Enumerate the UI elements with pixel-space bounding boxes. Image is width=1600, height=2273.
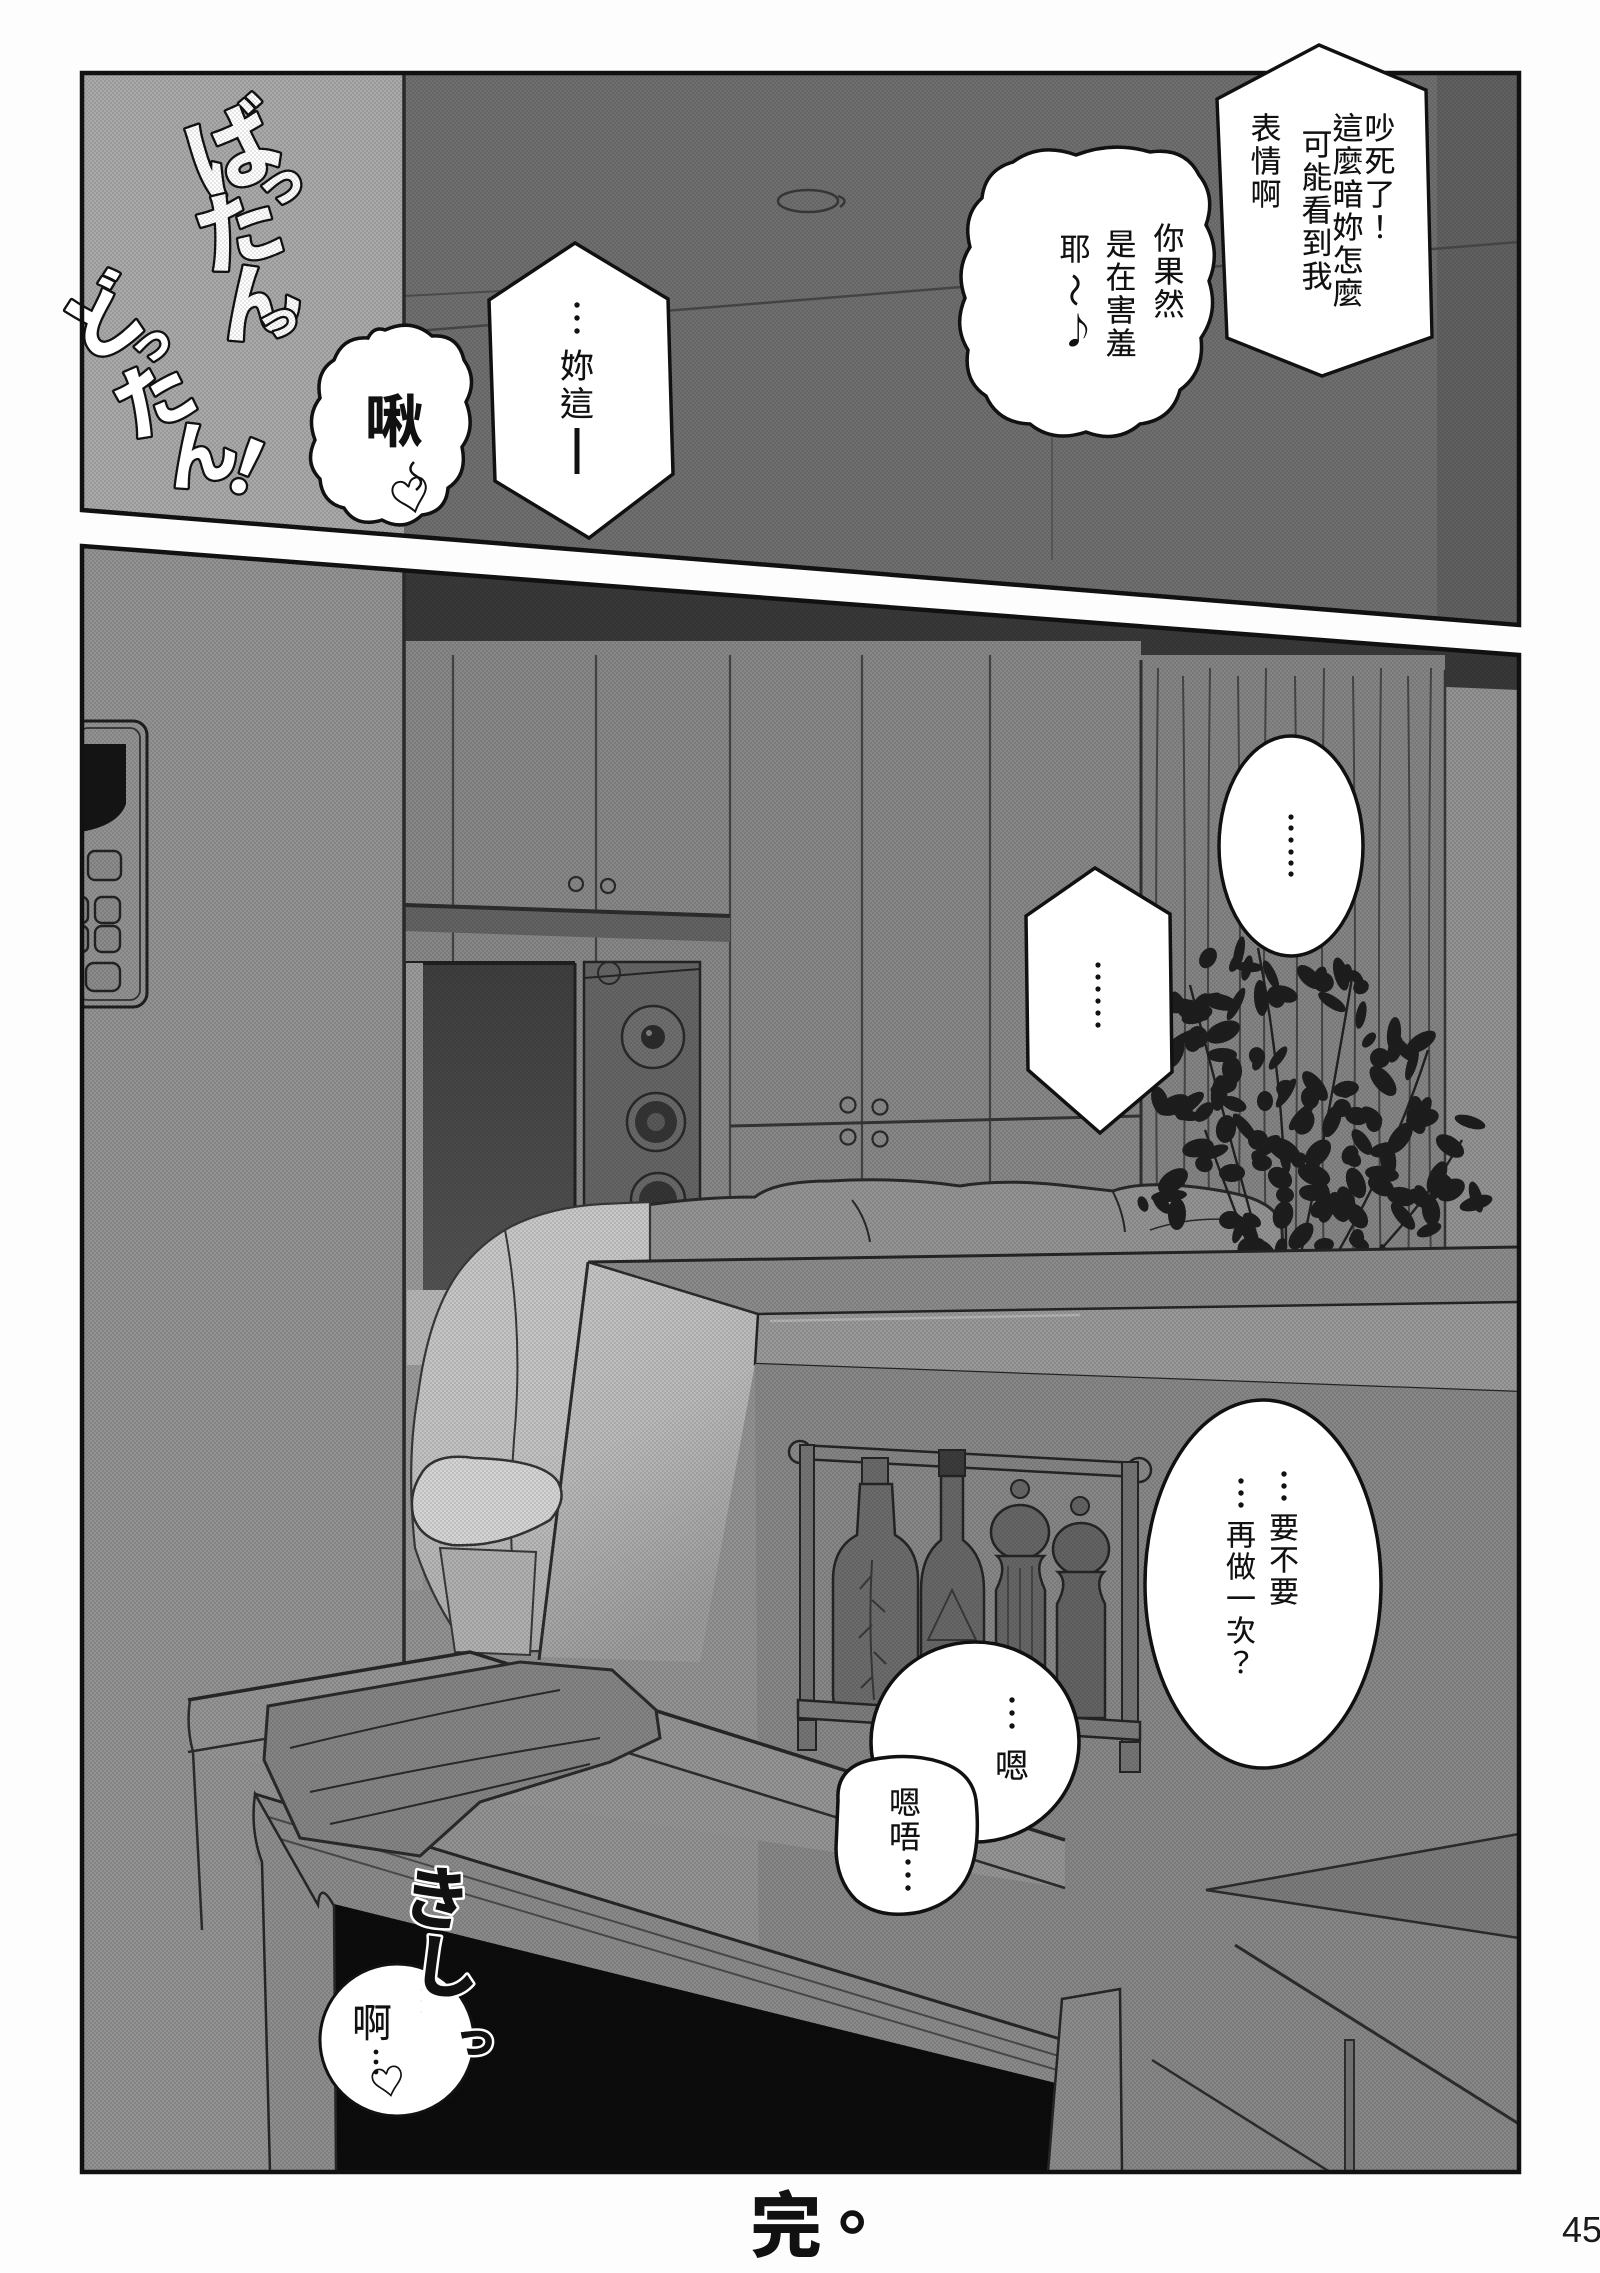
svg-text:45: 45: [1562, 2209, 1600, 2250]
